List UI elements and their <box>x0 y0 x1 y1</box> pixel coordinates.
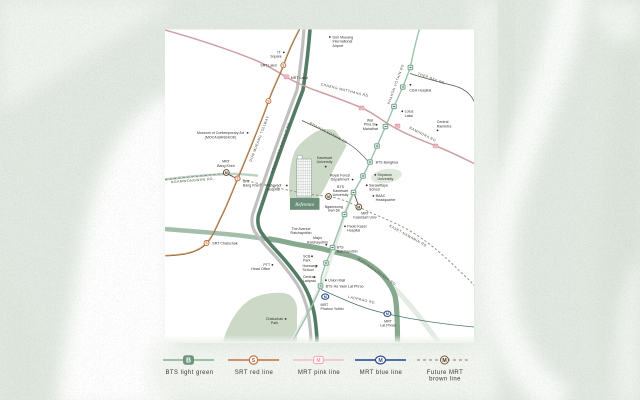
svg-text:Park: Park <box>303 258 311 262</box>
svg-text:Laksi: Laksi <box>405 114 414 118</box>
svg-text:M: M <box>225 171 228 175</box>
svg-text:Bang Khen: Bang Khen <box>217 164 235 168</box>
svg-text:Hospital: Hospital <box>267 188 280 192</box>
svg-text:Airport: Airport <box>333 44 344 48</box>
svg-text:Lat Phrao: Lat Phrao <box>380 324 396 328</box>
svg-text:Headquarter: Headquarter <box>376 198 397 202</box>
svg-text:M: M <box>357 205 360 209</box>
svg-text:M: M <box>442 358 446 364</box>
svg-text:MRT pink line: MRT pink line <box>298 370 341 376</box>
svg-text:BTS Ha Yaek Lat Phrao: BTS Ha Yaek Lat Phrao <box>326 285 364 289</box>
svg-text:Ramintra: Ramintra <box>437 124 452 128</box>
svg-text:Kasetsart Univ: Kasetsart Univ <box>353 216 377 220</box>
svg-text:wan 68: wan 68 <box>328 209 340 213</box>
svg-text:M: M <box>396 124 399 128</box>
svg-text:M: M <box>327 195 330 199</box>
svg-text:S: S <box>252 358 256 364</box>
svg-text:University: University <box>378 177 394 181</box>
svg-text:MRT Laksi: MRT Laksi <box>291 76 308 80</box>
svg-text:University: University <box>317 160 333 164</box>
svg-text:University: University <box>333 193 349 197</box>
svg-text:Park: Park <box>271 321 279 325</box>
svg-text:Ladprao: Ladprao <box>303 279 316 283</box>
svg-text:Future MRT: Future MRT <box>427 370 463 376</box>
svg-text:Department: Department <box>331 178 350 182</box>
svg-text:Hospital: Hospital <box>347 229 360 233</box>
svg-text:M: M <box>434 144 437 148</box>
svg-text:SRT Laksi: SRT Laksi <box>260 64 277 68</box>
svg-text:Square: Square <box>270 55 282 59</box>
svg-text:Union Mall: Union Mall <box>328 279 345 283</box>
svg-text:Phahon Yothin: Phahon Yothin <box>321 307 344 311</box>
svg-text:Ratchayothin: Ratchayothin <box>307 240 328 244</box>
svg-text:SRT red line: SRT red line <box>235 370 274 376</box>
svg-text:SRT Chatuchak: SRT Chatuchak <box>212 242 237 246</box>
svg-text:M: M <box>386 312 389 316</box>
svg-text:brown line: brown line <box>429 376 461 382</box>
svg-text:MRT blue line: MRT blue line <box>360 370 403 376</box>
svg-text:Reference: Reference <box>294 203 315 208</box>
svg-text:Head Office: Head Office <box>251 267 270 271</box>
svg-text:M: M <box>285 75 288 79</box>
svg-text:Mahathat: Mahathat <box>363 127 378 131</box>
svg-text:Bang Khen: Bang Khen <box>243 184 261 188</box>
svg-text:(MOCA BANGKOK): (MOCA BANGKOK) <box>205 136 237 140</box>
svg-text:Ratchayothin: Ratchayothin <box>337 250 358 254</box>
svg-text:BTS Bangbua: BTS Bangbua <box>376 161 398 165</box>
svg-text:M: M <box>316 358 320 364</box>
svg-text:B: B <box>186 358 191 365</box>
svg-text:School: School <box>369 188 380 192</box>
svg-text:M: M <box>378 358 382 364</box>
svg-text:CGH Hospital: CGH Hospital <box>409 89 431 93</box>
svg-text:M: M <box>324 295 327 299</box>
svg-text:M: M <box>360 106 363 110</box>
svg-text:BTS light green: BTS light green <box>165 370 213 376</box>
svg-text:School: School <box>303 268 314 272</box>
svg-text:Museum of Contemporary Art: Museum of Contemporary Art <box>197 131 244 135</box>
svg-text:Ratchayothin: Ratchayothin <box>291 231 312 235</box>
